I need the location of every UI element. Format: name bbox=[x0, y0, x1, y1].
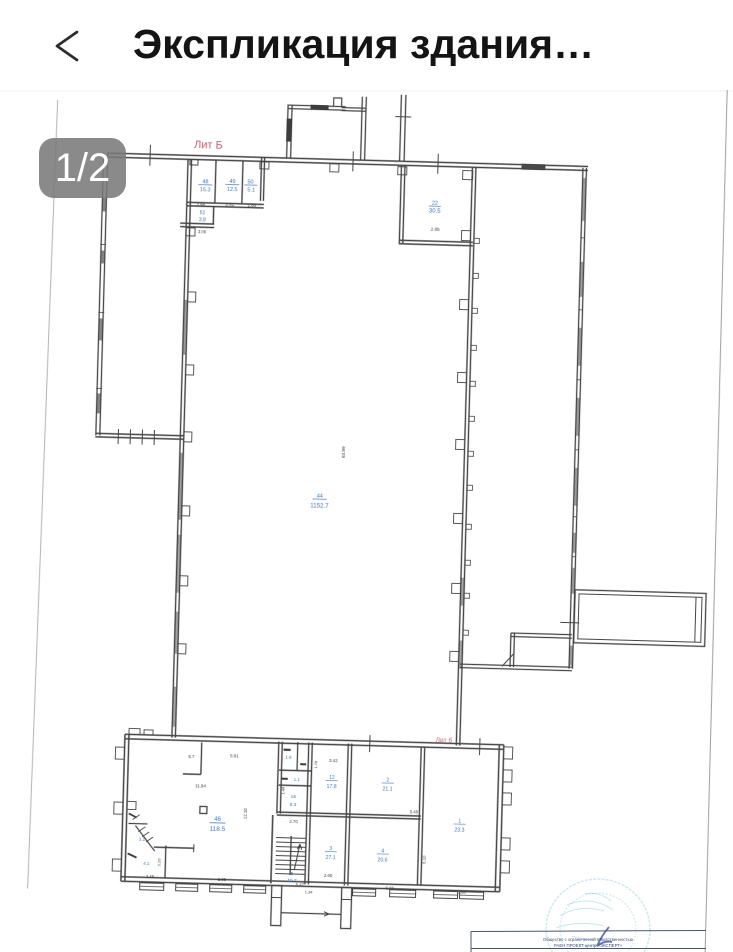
svg-text:118.5: 118.5 bbox=[209, 826, 225, 833]
svg-text:2.41: 2.41 bbox=[225, 202, 234, 207]
svg-text:11.94: 11.94 bbox=[195, 783, 206, 788]
svg-text:2.46: 2.46 bbox=[146, 874, 155, 879]
svg-text:2.85: 2.85 bbox=[431, 227, 441, 232]
svg-text:27.1: 27.1 bbox=[325, 855, 335, 861]
svg-text:3.06: 3.06 bbox=[198, 229, 207, 234]
svg-text:46: 46 bbox=[214, 817, 222, 823]
svg-text:8.00: 8.00 bbox=[458, 890, 467, 895]
svg-text:12.10: 12.10 bbox=[243, 808, 248, 820]
svg-text:1152.7: 1152.7 bbox=[310, 502, 329, 510]
svg-text:2: 2 bbox=[386, 778, 389, 784]
svg-text:2.98: 2.98 bbox=[196, 202, 205, 207]
svg-text:3.1: 3.1 bbox=[139, 837, 146, 842]
svg-text:17.8: 17.8 bbox=[326, 784, 336, 790]
svg-text:1.1: 1.1 bbox=[294, 777, 301, 782]
svg-text:5.7: 5.7 bbox=[188, 754, 195, 759]
svg-text:1: 1 bbox=[458, 819, 461, 825]
svg-text:4: 4 bbox=[381, 848, 384, 854]
svg-text:15.3: 15.3 bbox=[200, 187, 211, 193]
svg-text:5.47: 5.47 bbox=[296, 882, 305, 887]
svg-text:63.99: 63.99 bbox=[341, 446, 346, 458]
svg-text:5.65: 5.65 bbox=[386, 886, 395, 891]
svg-text:5.91: 5.91 bbox=[230, 753, 239, 758]
svg-text:21.1: 21.1 bbox=[382, 786, 392, 792]
svg-text:5.48: 5.48 bbox=[410, 809, 419, 814]
svg-text:3.42: 3.42 bbox=[329, 758, 338, 763]
svg-text:Лит б: Лит б bbox=[436, 736, 453, 744]
svg-text:8.3: 8.3 bbox=[290, 802, 297, 808]
svg-text:51: 51 bbox=[200, 210, 206, 216]
svg-text:1.34: 1.34 bbox=[305, 889, 314, 894]
svg-text:1.68: 1.68 bbox=[247, 202, 256, 207]
svg-text:5.1: 5.1 bbox=[247, 187, 255, 193]
svg-text:4.1: 4.1 bbox=[143, 861, 150, 866]
svg-text:5: 5 bbox=[291, 871, 294, 876]
svg-text:23.3: 23.3 bbox=[454, 828, 464, 834]
svg-text:3: 3 bbox=[329, 846, 332, 852]
svg-text:16: 16 bbox=[291, 794, 297, 800]
svg-text:РАЕН ПРОЕКТ центр «ЭКСПЕРТ»: РАЕН ПРОЕКТ центр «ЭКСПЕРТ» bbox=[554, 943, 623, 948]
svg-text:3.8: 3.8 bbox=[199, 217, 206, 223]
svg-text:1.9: 1.9 bbox=[285, 755, 292, 760]
svg-text:2.70: 2.70 bbox=[289, 819, 298, 824]
svg-text:6.10: 6.10 bbox=[421, 855, 426, 864]
svg-text:20.6: 20.6 bbox=[377, 857, 387, 863]
svg-text:Лит Б: Лит Б bbox=[194, 139, 223, 152]
svg-text:12.5: 12.5 bbox=[227, 187, 238, 193]
svg-text:2.60: 2.60 bbox=[324, 873, 333, 878]
svg-text:2.85: 2.85 bbox=[218, 877, 227, 882]
svg-text:30.5: 30.5 bbox=[429, 209, 442, 215]
svg-text:Общество с ограниченной ответс: Общество с ограниченной ответственностью bbox=[543, 937, 634, 942]
svg-text:1.78: 1.78 bbox=[313, 760, 318, 769]
svg-text:1.48: 1.48 bbox=[280, 786, 285, 795]
svg-text:2.20: 2.20 bbox=[156, 858, 161, 867]
